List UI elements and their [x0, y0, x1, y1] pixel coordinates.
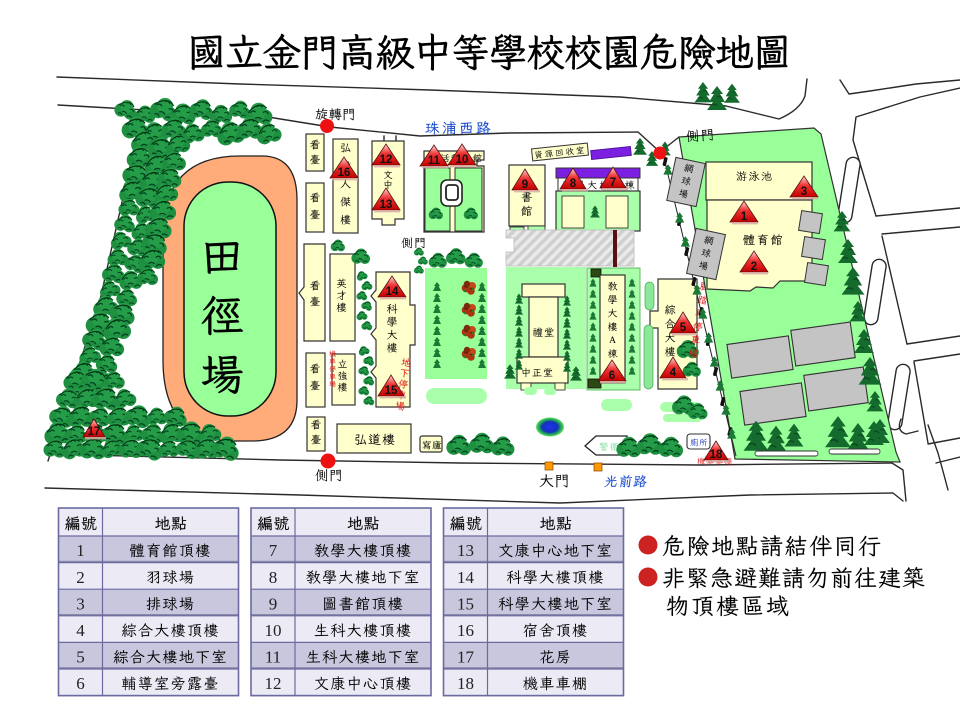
- svg-text:7: 7: [610, 177, 616, 189]
- svg-text:11: 11: [265, 648, 281, 667]
- svg-text:17: 17: [88, 426, 101, 438]
- svg-text:2: 2: [76, 568, 85, 587]
- svg-text:5: 5: [76, 648, 85, 667]
- svg-text:15: 15: [385, 385, 398, 397]
- svg-text:11: 11: [428, 155, 441, 167]
- svg-text:14: 14: [457, 568, 475, 587]
- svg-text:4: 4: [670, 367, 677, 379]
- svg-text:A: A: [609, 336, 616, 346]
- svg-text:3: 3: [76, 594, 85, 613]
- svg-text:7: 7: [269, 541, 278, 560]
- svg-text:13: 13: [380, 199, 393, 211]
- svg-text:16: 16: [457, 621, 474, 640]
- svg-text:4: 4: [76, 621, 85, 640]
- svg-text:18: 18: [710, 449, 723, 461]
- svg-text:9: 9: [269, 594, 278, 613]
- svg-text:8: 8: [570, 178, 577, 190]
- svg-text:16: 16: [338, 167, 351, 179]
- svg-text:3: 3: [801, 186, 807, 198]
- svg-text:2: 2: [751, 261, 757, 273]
- svg-text:12: 12: [380, 154, 393, 166]
- svg-text:10: 10: [456, 154, 469, 166]
- svg-text:6: 6: [609, 370, 615, 382]
- svg-text:6: 6: [76, 674, 85, 693]
- svg-text:18: 18: [457, 674, 474, 693]
- svg-text:1: 1: [741, 211, 748, 223]
- svg-text:17: 17: [457, 648, 475, 667]
- svg-text:13: 13: [457, 541, 474, 560]
- svg-text:1: 1: [76, 541, 85, 560]
- svg-text:8: 8: [269, 568, 278, 587]
- svg-text:15: 15: [457, 594, 474, 613]
- svg-text:5: 5: [680, 322, 687, 334]
- svg-text:14: 14: [386, 286, 399, 298]
- svg-text:9: 9: [522, 179, 528, 191]
- svg-text:12: 12: [265, 674, 282, 693]
- svg-text:10: 10: [265, 621, 282, 640]
